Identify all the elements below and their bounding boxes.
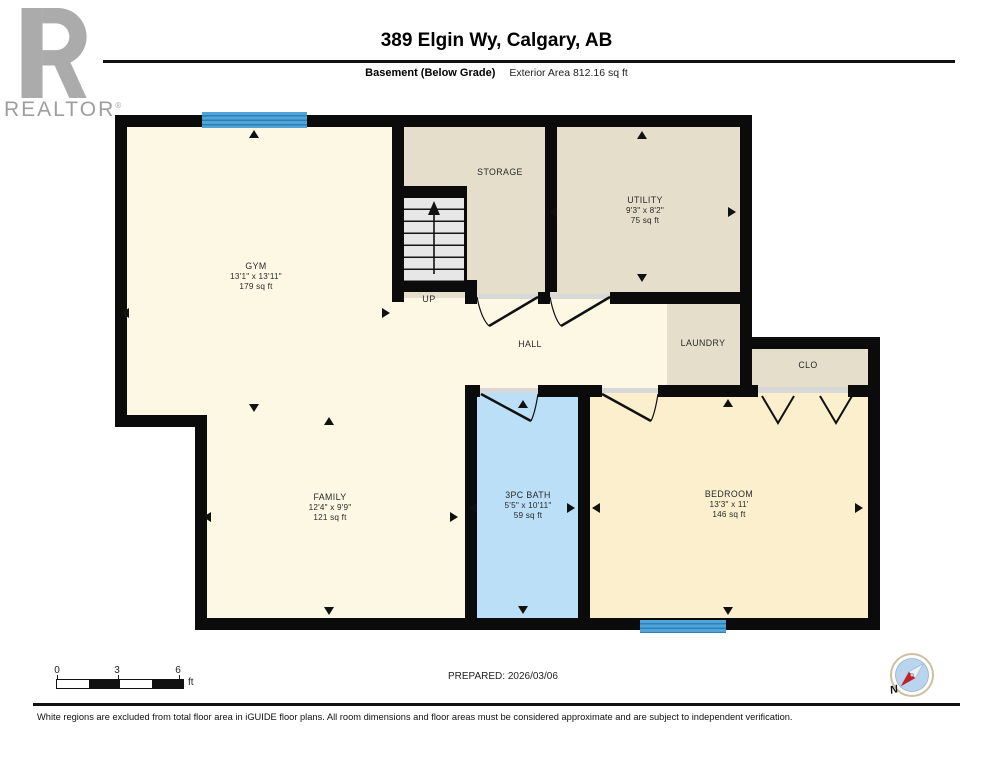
dimension-arrow-left: [469, 503, 477, 513]
dimension-arrow-right: [382, 308, 390, 318]
wall-closet-right-stub: [848, 385, 868, 397]
storage-name: STORAGE: [440, 167, 560, 178]
dimension-arrow-left: [203, 512, 211, 522]
bedroom-label: BEDROOM 13'3" x 11' 146 sq ft: [659, 489, 799, 521]
dimension-arrow-left: [549, 207, 557, 217]
dimension-arrow-left: [592, 503, 600, 513]
closet-name: CLO: [758, 360, 858, 371]
dimension-arrow-right: [855, 503, 863, 513]
scale-tick-6: 6: [171, 665, 185, 676]
wall-right: [868, 337, 880, 630]
wall-bath-bedroom-top: [538, 385, 602, 397]
wall-stairs-bottom: [392, 280, 467, 292]
dimension-arrow-down: [324, 607, 334, 615]
hall-label: HALL: [480, 339, 580, 350]
family-area: 121 sq ft: [260, 513, 400, 524]
bath-dims: 5'5" x 10'11": [458, 501, 598, 512]
dimension-arrow-up: [249, 130, 259, 138]
laundry-name: LAUNDRY: [653, 338, 753, 349]
wall-bedroom-top: [658, 385, 758, 397]
bedroom-dims: 13'3" x 11': [659, 500, 799, 511]
dimension-arrow-up: [518, 400, 528, 408]
gym-area: 179 sq ft: [186, 282, 326, 293]
bedroom-name: BEDROOM: [659, 489, 799, 500]
staircase: [404, 198, 464, 281]
plan-subtitle: Basement (Below Grade) Exterior Area 812…: [200, 67, 793, 79]
hall-name: HALL: [480, 339, 580, 350]
utility-name: UTILITY: [585, 195, 705, 206]
scale-segment: [57, 680, 89, 688]
bath-area: 59 sq ft: [458, 511, 598, 522]
wall-storage-utility: [545, 115, 557, 292]
staircase-edge: [464, 196, 467, 292]
storage-label: STORAGE: [440, 167, 560, 178]
wall-stairs-top: [392, 186, 467, 198]
wall-left-upper: [115, 115, 127, 427]
scale-segment: [89, 680, 121, 688]
utility-door-sill: [550, 294, 610, 299]
exterior-area-label: Exterior Area 812.16 sq ft: [509, 67, 627, 79]
scale-bar: [56, 679, 184, 689]
wall-closet-top: [740, 337, 880, 349]
dimension-arrow-down: [723, 607, 733, 615]
dimension-arrow-down: [249, 404, 259, 412]
dimension-arrow-up: [637, 131, 647, 139]
wall-gym-right: [392, 115, 404, 302]
bath-label: 3PC BATH 5'5" x 10'11" 59 sq ft: [458, 490, 598, 522]
family-label: FAMILY 12'4" x 9'9" 121 sq ft: [260, 492, 400, 524]
utility-dims: 9'3" x 8'2": [585, 206, 705, 217]
wall-utility-right: [740, 115, 752, 397]
scale-segment: [152, 680, 184, 688]
dimension-arrow-up: [324, 417, 334, 425]
realtor-logo-icon: [12, 8, 98, 98]
bedroom-door-sill: [602, 388, 658, 393]
dimension-arrow-down: [637, 274, 647, 282]
closet-sill: [758, 387, 848, 393]
dimension-arrow-right: [728, 207, 736, 217]
gym-label: GYM 13'1" x 13'11" 179 sq ft: [186, 261, 326, 293]
floor-label: Basement (Below Grade): [365, 67, 495, 79]
header-divider: [103, 60, 955, 63]
wall-left-step: [115, 415, 207, 427]
dimension-arrow-left: [121, 308, 129, 318]
wall-bottom: [195, 618, 880, 630]
bedroom-window: [640, 620, 726, 633]
gym-dims: 13'1" x 13'11": [186, 272, 326, 283]
scale-tick-3: 3: [110, 665, 124, 676]
prepared-date: PREPARED: 2026/03/06: [448, 671, 558, 682]
utility-area: 75 sq ft: [585, 216, 705, 227]
footer-divider: [33, 703, 960, 706]
registered-mark: ®: [115, 101, 123, 110]
bath-door-sill: [480, 388, 538, 393]
bedroom-area: 146 sq ft: [659, 510, 799, 521]
dimension-arrow-right: [567, 503, 575, 513]
wall-storage-door-right: [538, 292, 550, 304]
family-name: FAMILY: [260, 492, 400, 503]
gym-window: [202, 112, 307, 128]
floor-plan-page: REALTOR® 389 Elgin Wy, Calgary, AB Basem…: [0, 0, 993, 768]
scale-segment: [120, 680, 152, 688]
dimension-arrow-right: [450, 512, 458, 522]
dimension-arrow-up: [723, 399, 733, 407]
laundry-label: LAUNDRY: [653, 338, 753, 349]
scale-unit-label: ft: [188, 677, 194, 688]
dimension-arrow-down: [518, 606, 528, 614]
utility-label: UTILITY 9'3" x 8'2" 75 sq ft: [585, 195, 705, 227]
disclaimer-text: White regions are excluded from total fl…: [37, 712, 967, 722]
page-title: 389 Elgin Wy, Calgary, AB: [200, 30, 793, 52]
storage-door-sill: [477, 294, 538, 299]
stairs-up-label: UP: [414, 294, 444, 304]
bath-name: 3PC BATH: [458, 490, 598, 501]
family-dims: 12'4" x 9'9": [260, 503, 400, 514]
closet-label: CLO: [758, 360, 858, 371]
wall-utility-bottom: [610, 292, 752, 304]
realtor-wordmark: REALTOR®: [4, 98, 123, 122]
wall-left-lower: [195, 415, 207, 630]
gym-name: GYM: [186, 261, 326, 272]
